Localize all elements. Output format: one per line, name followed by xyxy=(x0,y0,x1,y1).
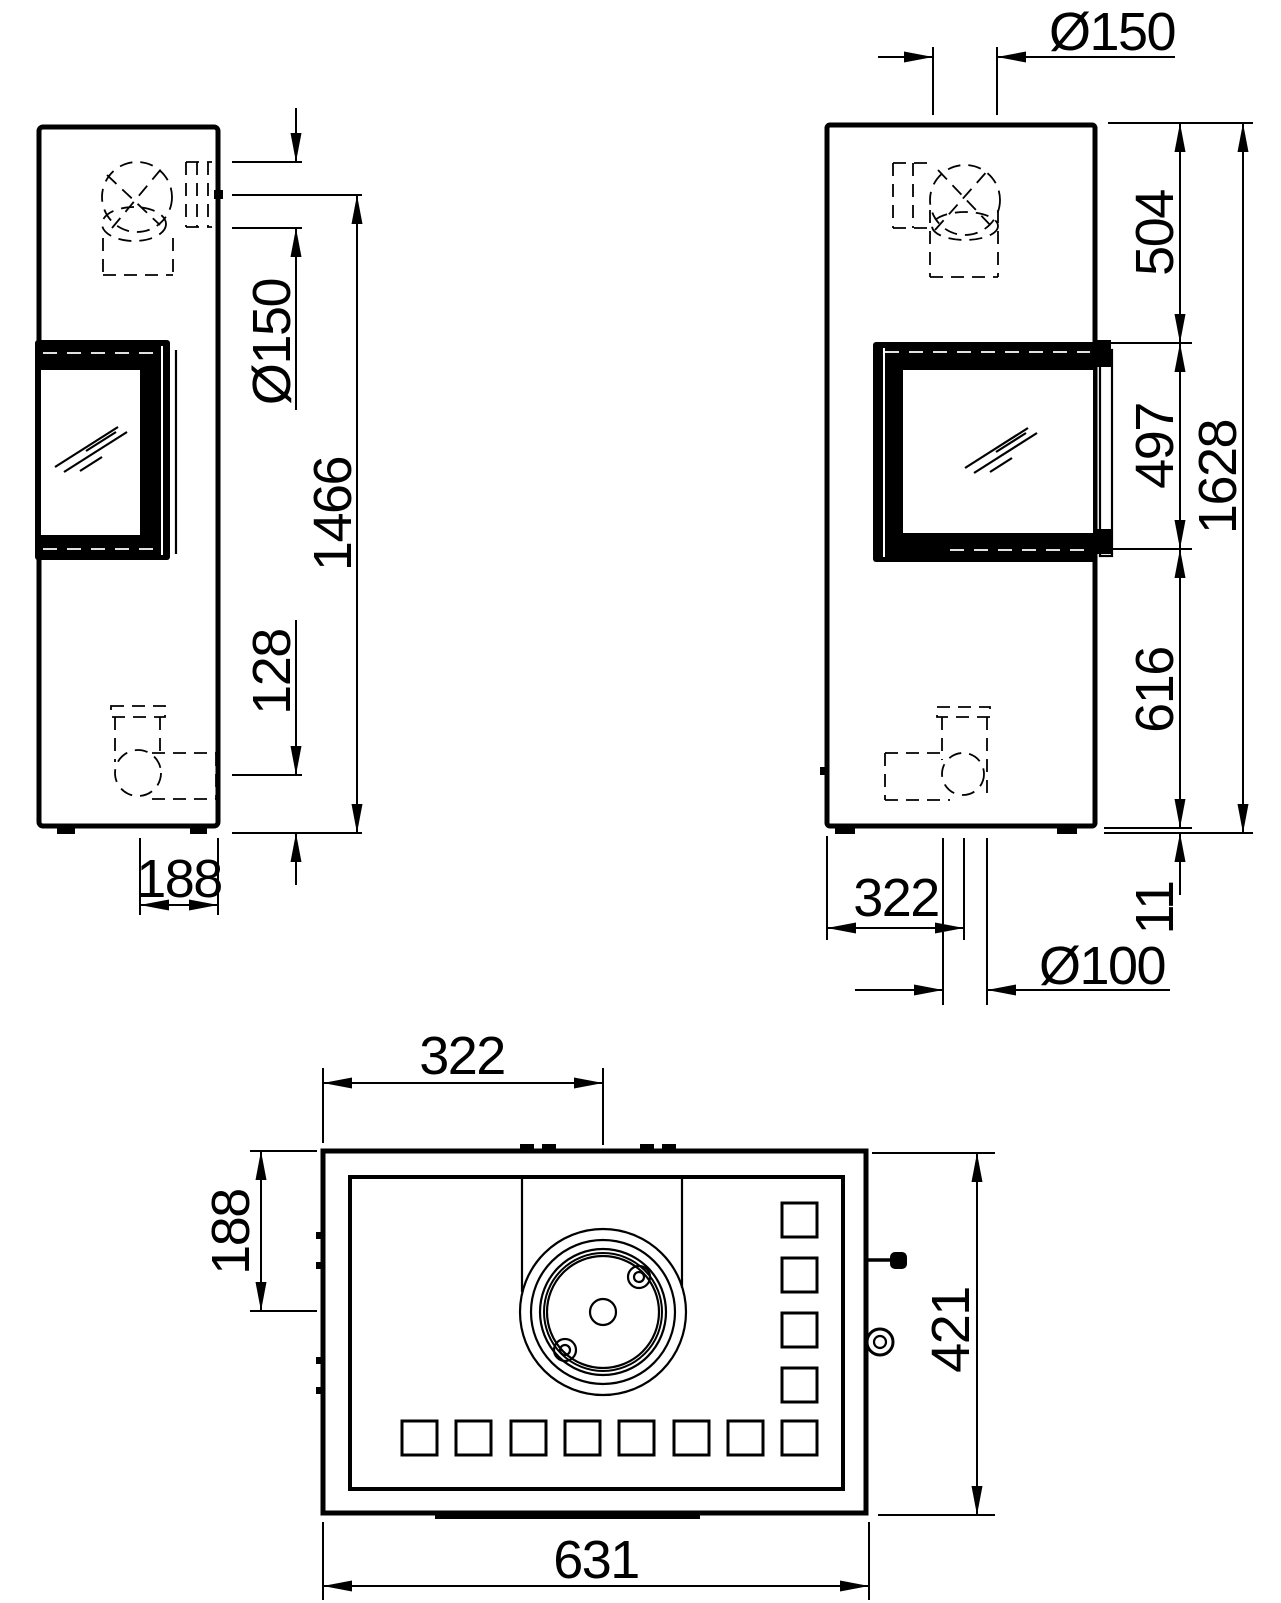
arrowhead-icon xyxy=(972,1486,983,1515)
arrowhead-icon xyxy=(1238,123,1249,152)
arrowhead-icon xyxy=(574,1078,603,1089)
arrowhead-icon xyxy=(323,1078,352,1089)
vent-square xyxy=(782,1368,817,1402)
arrowhead-icon xyxy=(291,228,302,257)
side-view-dimensions: Ø150 1466 128 188 xyxy=(136,279,363,909)
dim-front-top-flue-diameter: Ø150 xyxy=(1049,2,1175,62)
flue-collar-center-hole xyxy=(590,1299,616,1325)
stove-foot xyxy=(190,826,207,834)
arrowhead-icon xyxy=(352,195,363,224)
technical-drawing: Ø150 1466 128 188 xyxy=(0,0,1281,1603)
dim-top-depth: 421 xyxy=(921,1287,981,1373)
latch-eyelet-hole xyxy=(874,1336,886,1348)
arrowhead-icon xyxy=(1238,804,1249,833)
arrowhead-icon xyxy=(291,833,302,862)
dim-side-flue-center-height: 1466 xyxy=(303,457,363,571)
arrowhead-icon xyxy=(1175,343,1186,372)
arrowhead-icon xyxy=(840,1581,869,1592)
side-view-glass-door xyxy=(35,340,176,560)
back-edge-tab xyxy=(542,1144,556,1152)
flue-elbow-hidden xyxy=(102,207,166,241)
vent-square xyxy=(402,1421,437,1455)
arrowhead-icon xyxy=(972,1153,983,1182)
vent-square xyxy=(782,1203,817,1237)
vent-square xyxy=(782,1258,817,1292)
front-view-glass-door xyxy=(873,340,1112,562)
side-view: Ø150 1466 128 188 xyxy=(35,127,363,909)
inlet-center-mark xyxy=(820,767,828,775)
stove-top-plate xyxy=(350,1177,843,1489)
stove-foot xyxy=(835,827,855,834)
arrowhead-icon xyxy=(997,52,1026,63)
arrowhead-icon xyxy=(1175,549,1186,578)
dim-front-foot-height: 11 xyxy=(1125,881,1185,934)
side-edge-pin xyxy=(316,1262,325,1269)
arrowhead-icon xyxy=(827,923,856,934)
side-edge-pin xyxy=(316,1357,325,1364)
front-view-flue-pipe-hidden xyxy=(893,163,1000,277)
arrowhead-icon xyxy=(935,923,964,934)
stove-outline-top xyxy=(323,1151,866,1513)
dim-front-air-inlet-diameter: Ø100 xyxy=(1039,936,1165,996)
dim-side-air-inlet-height: 128 xyxy=(242,629,302,715)
collar-lug-hole xyxy=(634,1272,644,1282)
flue-center-mark xyxy=(214,190,223,199)
arrowhead-icon xyxy=(256,1282,267,1311)
dim-front-top-to-window: 504 xyxy=(1125,190,1185,276)
vent-square xyxy=(782,1421,817,1455)
top-view-flue-collar xyxy=(520,1179,686,1395)
back-edge-tab xyxy=(662,1144,676,1152)
back-edge-tab xyxy=(640,1144,654,1152)
side-view-flue-pipe-hidden xyxy=(102,162,212,275)
arrowhead-icon xyxy=(1175,123,1186,152)
vent-square xyxy=(728,1421,763,1455)
arrowhead-icon xyxy=(1175,314,1186,343)
stove-foot xyxy=(1057,827,1077,834)
vent-square xyxy=(782,1313,817,1347)
side-edge-pin xyxy=(316,1232,325,1239)
dim-front-window-height: 497 xyxy=(1125,403,1185,489)
dimension-arrows xyxy=(140,52,1249,1592)
dim-front-flue-offset-left: 322 xyxy=(853,868,939,928)
front-view-air-inlet-hidden xyxy=(885,707,990,800)
air-inlet-elbow-hidden xyxy=(942,753,984,795)
handle-knob xyxy=(890,1252,907,1269)
dim-front-total-height: 1628 xyxy=(1188,420,1248,534)
dim-top-flue-offset-back: 188 xyxy=(201,1189,261,1275)
arrowhead-icon xyxy=(291,133,302,162)
flue-collar-ring xyxy=(540,1249,666,1375)
flue-elbow-hidden xyxy=(102,162,172,232)
arrowhead-icon xyxy=(1175,520,1186,549)
arrowhead-icon xyxy=(291,746,302,775)
door-hinge xyxy=(1097,529,1111,554)
arrowhead-icon xyxy=(256,1151,267,1180)
air-inlet-collar-hidden xyxy=(111,706,165,717)
dim-top-flue-offset-left: 322 xyxy=(419,1026,505,1086)
arrowhead-icon xyxy=(352,804,363,833)
side-view-air-inlet-hidden xyxy=(111,706,218,799)
arrowhead-icon xyxy=(914,985,943,996)
side-edge-pin xyxy=(316,1387,325,1394)
arrowhead-icon xyxy=(1175,833,1186,862)
door-hinge xyxy=(1097,340,1111,367)
vent-square xyxy=(511,1421,546,1455)
vent-square xyxy=(456,1421,491,1455)
air-inlet-collar-hidden xyxy=(937,707,990,717)
stove-foot xyxy=(57,826,75,834)
back-edge-tab xyxy=(520,1144,534,1152)
dim-top-width: 631 xyxy=(553,1530,639,1590)
top-view-door-handle xyxy=(866,1252,907,1355)
dim-side-flue-diameter: Ø150 xyxy=(242,279,302,405)
vent-square xyxy=(565,1421,600,1455)
arrowhead-icon xyxy=(987,985,1016,996)
dim-front-window-to-bottom: 616 xyxy=(1125,647,1185,733)
air-inlet-elbow-hidden xyxy=(115,750,161,796)
flue-collar-ring xyxy=(531,1240,675,1384)
vent-square xyxy=(674,1421,709,1455)
dim-side-flue-offset-back: 188 xyxy=(136,849,222,909)
latch-eyelet xyxy=(867,1329,893,1355)
top-view: 322 188 421 631 xyxy=(201,1026,981,1590)
arrowhead-icon xyxy=(1175,799,1186,828)
arrowhead-icon xyxy=(323,1581,352,1592)
vent-square xyxy=(619,1421,654,1455)
door-edge xyxy=(1100,350,1112,556)
door-glass xyxy=(41,370,140,535)
arrowhead-icon xyxy=(904,52,933,63)
